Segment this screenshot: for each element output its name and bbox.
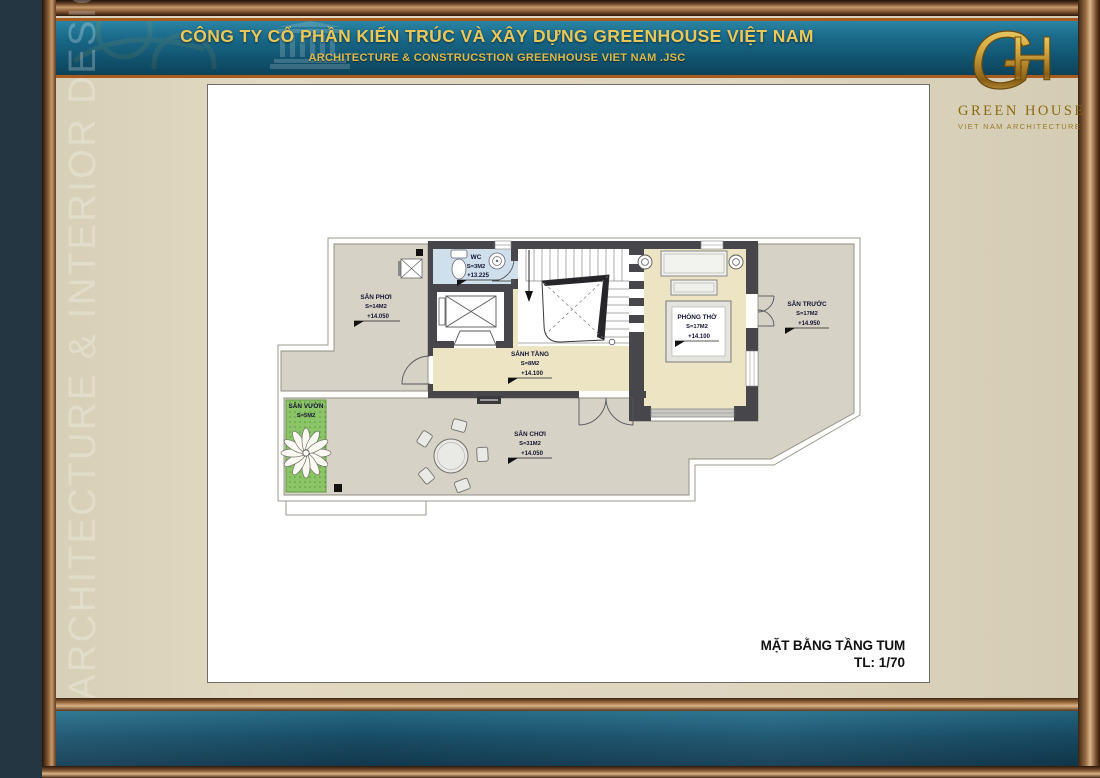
logo-monogram-icon: G H — [962, 18, 1074, 102]
svg-text:S=3M2: S=3M2 — [467, 264, 486, 270]
logo-tagline: VIET NAM ARCHITECTURE — [958, 122, 1078, 131]
svg-text:S=17M2: S=17M2 — [796, 311, 818, 317]
side-watermark-text: ARCHITECTURE & INTERIOR DESIGN — [62, 80, 105, 700]
company-header-band: CÔNG TY CỔ PHẦN KIẾN TRÚC VÀ XÂY DỰNG GR… — [56, 18, 1078, 78]
svg-text:S=8M2: S=8M2 — [521, 361, 540, 367]
floor-plan: SÂN PHƠI S=14M2 +14.050 WC S=3M2 +13.225… — [208, 85, 931, 684]
column-marker — [416, 249, 423, 256]
bottom-teal-band — [56, 711, 1078, 766]
drawing-title: MẶT BẰNG TẦNG TUM — [761, 638, 905, 653]
svg-text:SÂN PHƠI: SÂN PHƠI — [360, 292, 392, 301]
column-marker — [334, 484, 342, 492]
svg-text:S=14M2: S=14M2 — [365, 304, 387, 310]
svg-text:+14.950: +14.950 — [798, 321, 821, 327]
svg-text:SÂN TRƯỚC: SÂN TRƯỚC — [787, 299, 827, 308]
logo-name: GREEN HOUSE — [958, 103, 1078, 120]
bottom-band-frame — [56, 698, 1078, 711]
frame-left-mat — [0, 0, 42, 778]
elevator — [428, 284, 513, 348]
svg-text:+14.100: +14.100 — [688, 334, 711, 340]
svg-text:+14.100: +14.100 — [521, 371, 544, 377]
svg-text:H: H — [1010, 25, 1055, 94]
title-block: MẶT BẰNG TẦNG TUM TL: 1/70 — [761, 638, 905, 670]
svg-text:WC: WC — [471, 254, 482, 261]
drawing-sheet: SÂN PHƠI S=14M2 +14.050 WC S=3M2 +13.225… — [207, 84, 930, 683]
svg-text:PHÒNG THỜ: PHÒNG THỜ — [677, 312, 717, 321]
svg-text:+14.050: +14.050 — [521, 451, 544, 457]
frame-bottom — [42, 766, 1100, 778]
frame-top — [42, 0, 1100, 16]
svg-text:+14.050: +14.050 — [367, 314, 390, 320]
ac-unit-icon — [398, 259, 422, 278]
presentation-board: { "header": { "company_name_vi": "CÔNG T… — [0, 0, 1100, 778]
svg-text:S=5M2: S=5M2 — [297, 413, 316, 419]
svg-text:SÂN CHƠI: SÂN CHƠI — [514, 429, 546, 438]
svg-text:S=31M2: S=31M2 — [519, 441, 541, 447]
frame-left-strip — [42, 0, 56, 778]
svg-text:+13.225: +13.225 — [467, 273, 490, 279]
svg-text:S=17M2: S=17M2 — [686, 324, 708, 330]
svg-text:SÂN VƯỜN: SÂN VƯỜN — [289, 401, 324, 410]
stair-void — [542, 275, 615, 345]
company-name-english: ARCHITECTURE & CONSTRUCSTION GREENHOUSE … — [56, 52, 938, 64]
company-name-vietnamese: CÔNG TY CỔ PHẦN KIẾN TRÚC VÀ XÂY DỰNG GR… — [56, 26, 938, 47]
drawing-scale: TL: 1/70 — [761, 655, 905, 670]
greenhouse-logo: G H GREEN HOUSE VIET NAM ARCHITECTURE — [958, 18, 1078, 131]
